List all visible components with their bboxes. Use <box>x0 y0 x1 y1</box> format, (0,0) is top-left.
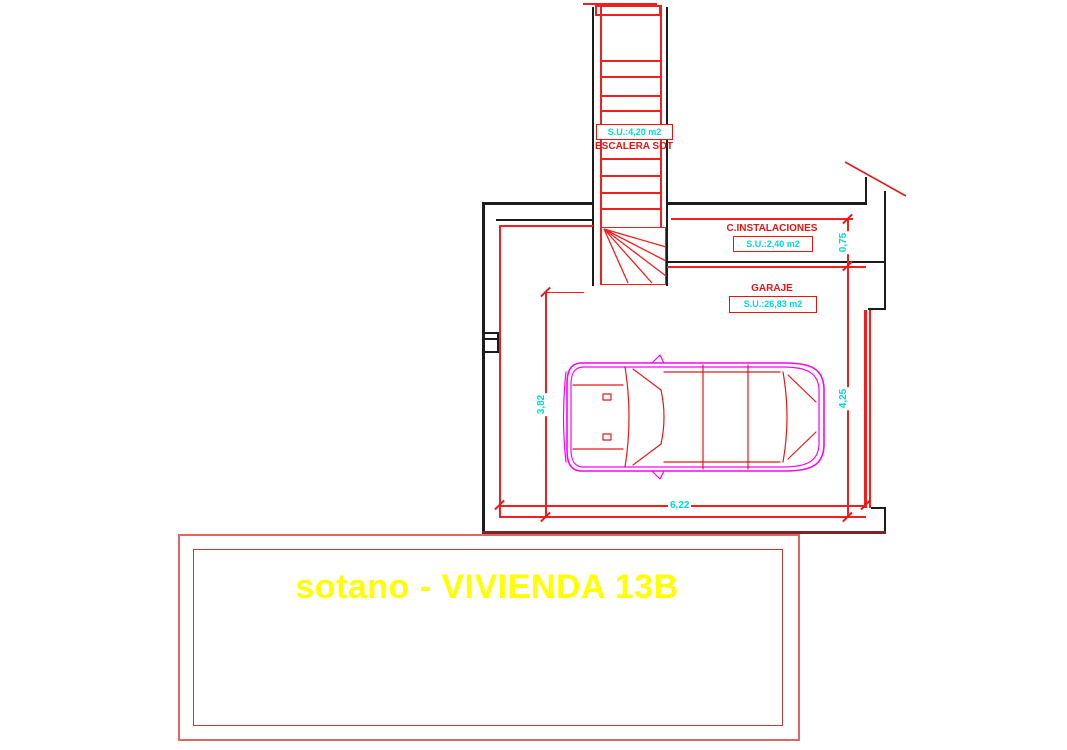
basement-floor-plan: S.U.:4,20 m2 ESCALERA SOT <box>0 0 1067 750</box>
plan-title: sotano - VIVIENDA 13B <box>193 568 781 607</box>
roof-diagonal-line <box>845 162 906 196</box>
stair-fan-lines <box>604 229 666 283</box>
car-icon <box>564 355 825 479</box>
